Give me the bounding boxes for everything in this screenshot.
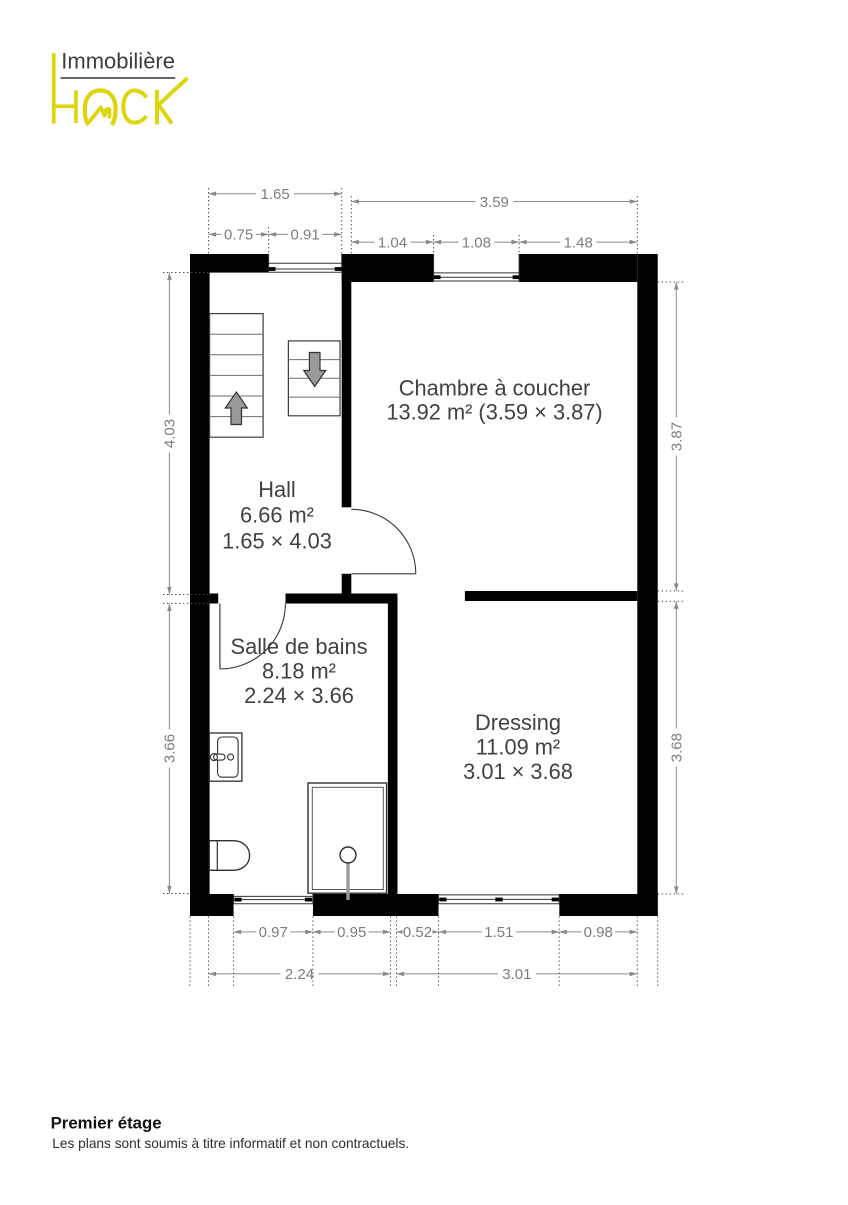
svg-text:0.97: 0.97 <box>259 924 288 941</box>
svg-text:0.95: 0.95 <box>337 924 366 941</box>
svg-text:Immobilière: Immobilière <box>61 48 175 73</box>
svg-text:4.03: 4.03 <box>162 419 179 448</box>
svg-text:0.91: 0.91 <box>290 227 319 244</box>
svg-text:13.92 m² (3.59 × 3.87): 13.92 m² (3.59 × 3.87) <box>386 399 602 424</box>
svg-text:Chambre à coucher: Chambre à coucher <box>399 375 590 400</box>
svg-text:8.18 m²: 8.18 m² <box>262 658 336 683</box>
svg-text:Hall: Hall <box>258 477 296 502</box>
svg-text:1.51: 1.51 <box>484 924 513 941</box>
svg-text:1.65 × 4.03: 1.65 × 4.03 <box>222 528 332 553</box>
svg-text:Dressing: Dressing <box>475 710 561 735</box>
svg-text:1.04: 1.04 <box>378 234 407 251</box>
svg-text:0.52: 0.52 <box>403 924 432 941</box>
svg-text:Premier étage: Premier étage <box>51 1114 162 1133</box>
svg-text:1.65: 1.65 <box>260 186 289 203</box>
svg-text:3.01 × 3.68: 3.01 × 3.68 <box>463 759 573 784</box>
svg-text:1.48: 1.48 <box>564 234 593 251</box>
svg-text:6.66 m²: 6.66 m² <box>240 502 314 527</box>
svg-text:3.87: 3.87 <box>669 422 686 451</box>
svg-text:Salle de bains: Salle de bains <box>231 634 368 659</box>
svg-text:0.98: 0.98 <box>584 924 613 941</box>
svg-text:3.66: 3.66 <box>162 734 179 763</box>
svg-text:2.24 × 3.66: 2.24 × 3.66 <box>244 683 354 708</box>
svg-text:2.24: 2.24 <box>285 966 314 983</box>
svg-text:3.59: 3.59 <box>480 194 509 211</box>
svg-text:1.08: 1.08 <box>462 234 491 251</box>
svg-text:3.68: 3.68 <box>669 733 686 762</box>
svg-text:11.09 m²: 11.09 m² <box>476 734 560 759</box>
svg-text:0.75: 0.75 <box>224 227 253 244</box>
svg-text:Les plans sont soumis à titre: Les plans sont soumis à titre informatif… <box>52 1136 409 1151</box>
svg-text:3.01: 3.01 <box>502 966 531 983</box>
